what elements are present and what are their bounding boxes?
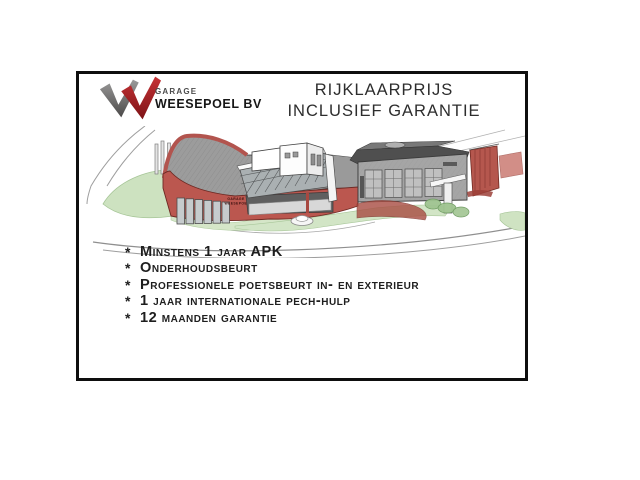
svg-text:WEESEPOEL: WEESEPOEL bbox=[224, 201, 249, 205]
flyer-page: { "logo": { "company_prefix": "GARAGE", … bbox=[0, 0, 640, 480]
logo-prefix: GARAGE bbox=[155, 88, 262, 96]
bullet-asterisk: * bbox=[125, 278, 140, 292]
bullet-asterisk: * bbox=[125, 245, 140, 259]
logo-company-name: WEESEPOEL BV bbox=[155, 98, 262, 111]
bullet-asterisk: * bbox=[125, 311, 140, 325]
feature-item: * 1 jaar internationale pech-hulp bbox=[125, 294, 419, 310]
page-title: RIJKLAARPRIJS INCLUSIEF GARANTIE bbox=[259, 80, 509, 121]
feature-text: Professionele poetsbeurt in- en exterieu… bbox=[140, 278, 419, 293]
garage-weesepoel-logo: GARAGE WEESEPOEL BV bbox=[98, 76, 278, 124]
red-side-building bbox=[467, 144, 523, 197]
feature-item: * Professionele poetsbeurt in- en exteri… bbox=[125, 278, 419, 294]
features-list: * Minstens 1 jaar APK * Onderhoudsbeurt … bbox=[125, 245, 419, 327]
building-illustration: GARAGE WEESEPOEL bbox=[85, 126, 525, 258]
feature-item: * Minstens 1 jaar APK bbox=[125, 245, 419, 261]
feature-text: Onderhoudsbeurt bbox=[140, 261, 258, 276]
flyer-frame: GARAGE WEESEPOEL BV RIJKLAARPRIJS INCLUS… bbox=[76, 71, 528, 381]
double-checkmark-logo-icon bbox=[98, 76, 162, 120]
feature-item: * 12 maanden garantie bbox=[125, 311, 419, 327]
feature-text: 12 maanden garantie bbox=[140, 311, 277, 326]
title-line-2: INCLUSIEF GARANTIE bbox=[259, 101, 509, 122]
feature-text: Minstens 1 jaar APK bbox=[140, 245, 283, 260]
svg-text:GARAGE: GARAGE bbox=[227, 197, 245, 201]
feature-item: * Onderhoudsbeurt bbox=[125, 261, 419, 277]
feature-text: 1 jaar internationale pech-hulp bbox=[140, 294, 350, 309]
bullet-asterisk: * bbox=[125, 261, 140, 275]
title-line-1: RIJKLAARPRIJS bbox=[259, 80, 509, 101]
bullet-asterisk: * bbox=[125, 294, 140, 308]
